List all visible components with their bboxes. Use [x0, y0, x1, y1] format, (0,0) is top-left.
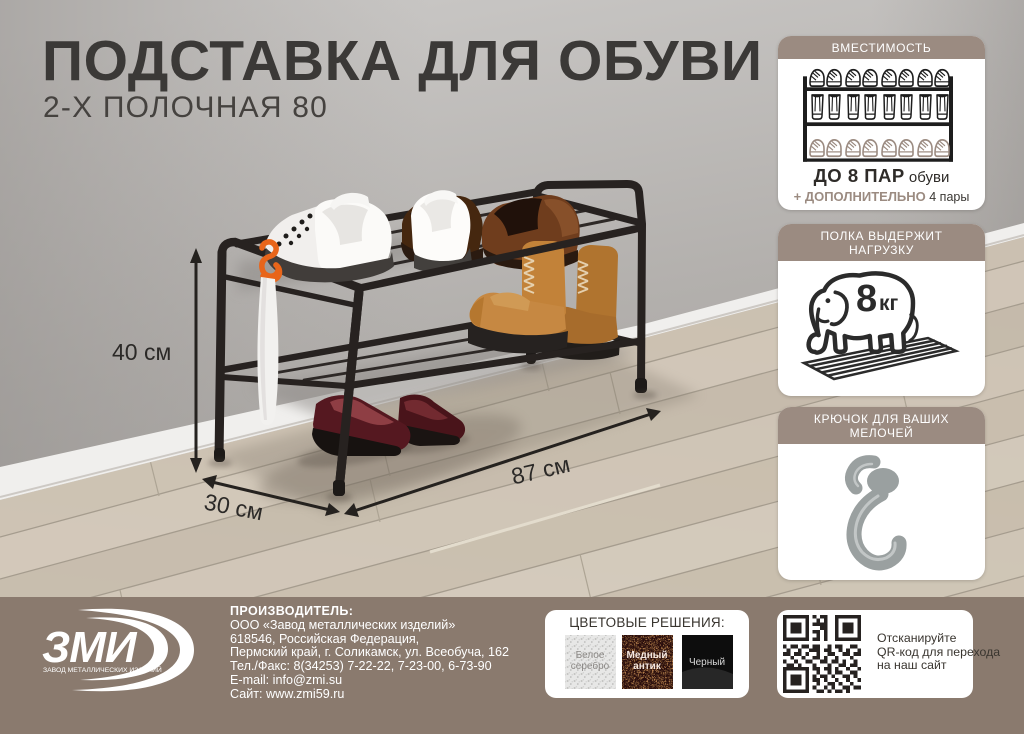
svg-text:ЗМИ: ЗМИ [42, 623, 138, 672]
svg-text:кг: кг [879, 292, 899, 315]
svg-text:антик: антик [633, 661, 662, 672]
svg-text:серебро: серебро [571, 660, 610, 672]
svg-text:40 см: 40 см [112, 339, 171, 365]
svg-text:Медный: Медный [627, 650, 668, 661]
svg-text:ЗАВОД МЕТАЛЛИЧЕСКИХ ИЗДЕЛИЙ: ЗАВОД МЕТАЛЛИЧЕСКИХ ИЗДЕЛИЙ [43, 665, 162, 674]
svg-text:Черный: Черный [689, 657, 725, 668]
svg-text:8: 8 [856, 278, 877, 320]
svg-text:Белое: Белое [576, 650, 605, 661]
